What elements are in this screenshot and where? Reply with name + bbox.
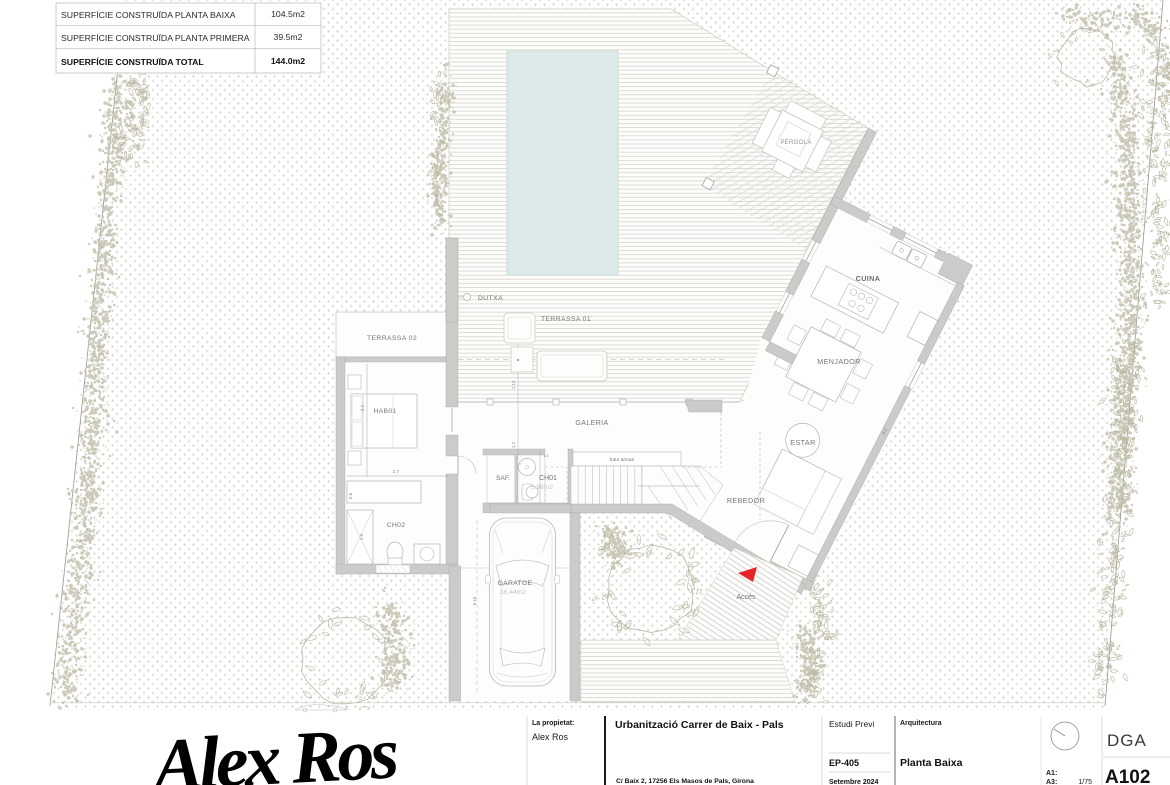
svg-text:A102: A102	[1105, 767, 1150, 785]
svg-text:0.6: 0.6	[348, 492, 353, 499]
svg-text:5.15: 5.15	[472, 596, 477, 605]
svg-text:TERRASSA 02: TERRASSA 02	[367, 335, 417, 342]
svg-text:ESTAR: ESTAR	[790, 438, 815, 447]
svg-text:Alex Ros: Alex Ros	[148, 712, 400, 785]
svg-text:2.7: 2.7	[393, 469, 400, 474]
svg-text:CH01: CH01	[539, 475, 557, 482]
svg-text:GARATGE: GARATGE	[498, 580, 533, 587]
svg-text:C/ Baix 2, 17256 Els Masos de: C/ Baix 2, 17256 Els Masos de Pals, Giro…	[616, 778, 754, 785]
svg-text:1.12: 1.12	[511, 380, 516, 389]
svg-text:MENJADOR: MENJADOR	[817, 357, 861, 366]
svg-text:Arquitectura: Arquitectura	[900, 720, 942, 727]
svg-text:Accés: Accés	[736, 594, 756, 601]
svg-text:DGA: DGA	[1107, 731, 1147, 750]
svg-text:La propietat:: La propietat:	[532, 720, 574, 727]
svg-text:PÈRGOLA: PÈRGOLA	[780, 139, 812, 146]
svg-text:SUPERFÍCIE CONSTRUÏDA PLANTA P: SUPERFÍCIE CONSTRUÏDA PLANTA PRIMERA	[61, 33, 250, 43]
svg-text:TERRASSA 01: TERRASSA 01	[541, 316, 591, 323]
svg-text:1.5: 1.5	[359, 533, 364, 540]
svg-text:SAF.: SAF.	[496, 475, 510, 482]
svg-text:EP-405: EP-405	[829, 758, 859, 768]
svg-text:39.5m2: 39.5m2	[274, 32, 303, 42]
svg-text:Estudi Previ: Estudi Previ	[829, 719, 874, 729]
svg-text:futur armari: futur armari	[610, 457, 635, 463]
svg-text:16.44m2: 16.44m2	[500, 589, 526, 596]
svg-text:CH02: CH02	[387, 522, 406, 529]
svg-text:Planta Baixa: Planta Baixa	[900, 757, 963, 769]
svg-text:A3:: A3:	[1046, 779, 1057, 785]
svg-text:Urbanització Carrer de Baix -: Urbanització Carrer de Baix - Pals	[615, 719, 784, 731]
svg-text:REBEDOR: REBEDOR	[727, 496, 765, 505]
svg-text:1.96m2: 1.96m2	[531, 484, 553, 491]
svg-text:SUPERFÍCIE CONSTRUÏDA PLANTA B: SUPERFÍCIE CONSTRUÏDA PLANTA BAIXA	[61, 10, 236, 20]
svg-text:Setembre 2024: Setembre 2024	[829, 779, 879, 785]
svg-text:Alex Ros: Alex Ros	[532, 732, 569, 742]
svg-text:A1:: A1:	[1046, 770, 1057, 777]
svg-text:1.4: 1.4	[543, 453, 549, 458]
svg-text:GALERIA: GALERIA	[575, 420, 608, 427]
svg-text:144.0m2: 144.0m2	[271, 56, 305, 66]
svg-text:1/75: 1/75	[1078, 779, 1092, 785]
svg-text:104.5m2: 104.5m2	[271, 9, 305, 19]
svg-text:CUINA: CUINA	[856, 274, 881, 283]
svg-text:3.2: 3.2	[360, 404, 365, 411]
svg-text:DUTXA: DUTXA	[478, 295, 503, 302]
svg-text:1.2: 1.2	[511, 441, 516, 448]
svg-text:SUPERFÍCIE CONSTRUÏDA TOTAL: SUPERFÍCIE CONSTRUÏDA TOTAL	[61, 57, 204, 67]
svg-text:HAB01: HAB01	[373, 408, 396, 415]
